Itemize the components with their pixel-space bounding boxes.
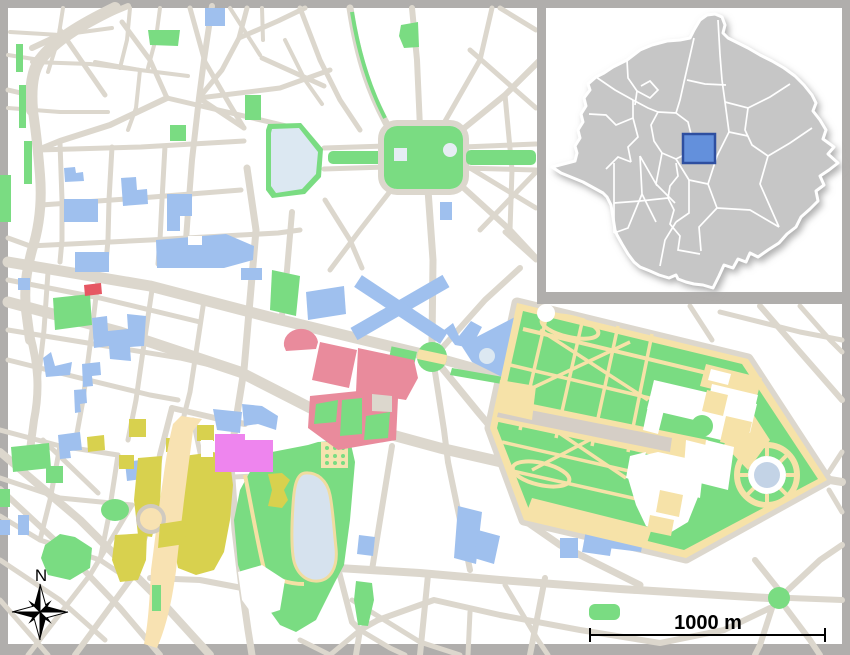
svg-text:N: N	[35, 566, 47, 585]
svg-text:1000 m: 1000 m	[674, 612, 742, 634]
